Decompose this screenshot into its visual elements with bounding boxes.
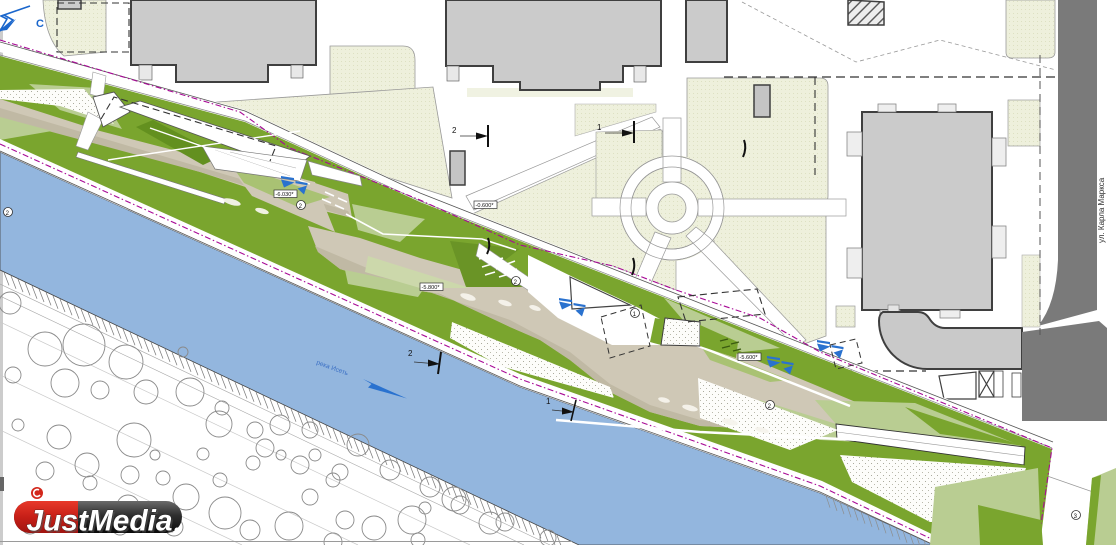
svg-text:JustMedia: JustMedia: [27, 505, 173, 538]
svg-text:-5.800*: -5.800*: [422, 285, 441, 291]
svg-text:ул. Карла Маркса: ул. Карла Маркса: [1097, 177, 1106, 243]
svg-text:2: 2: [452, 126, 457, 135]
svg-text:-0.600*: -0.600*: [476, 203, 495, 209]
svg-text:1: 1: [597, 123, 602, 132]
svg-text:С: С: [36, 18, 44, 30]
svg-text:2: 2: [408, 349, 413, 358]
svg-text:-5.600*: -5.600*: [740, 355, 759, 361]
svg-text:-6.030*: -6.030*: [276, 192, 295, 198]
svg-text:1: 1: [546, 397, 551, 406]
